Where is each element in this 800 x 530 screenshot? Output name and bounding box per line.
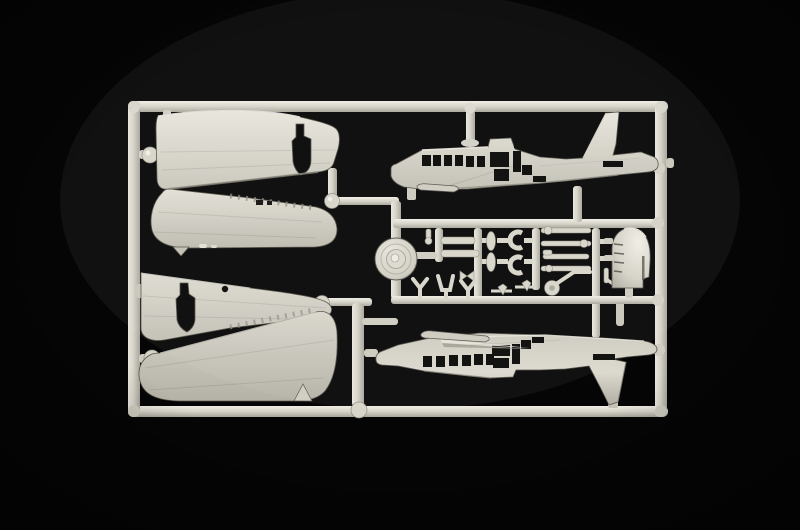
photo-of-model-sprue [0, 0, 800, 530]
sprue-photo-canvas [0, 0, 800, 530]
vignette [0, 0, 800, 530]
